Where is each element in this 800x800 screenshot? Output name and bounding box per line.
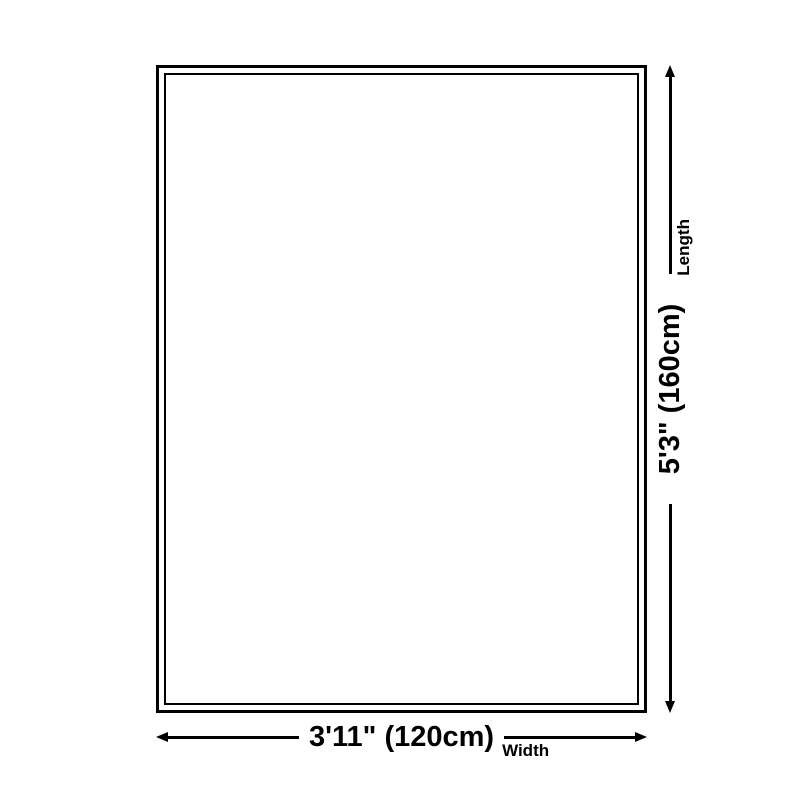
width-label: Width (502, 741, 549, 761)
width-arrow-left-segment (156, 731, 299, 743)
length-arrow-top-segment: Length (664, 65, 676, 274)
length-label: Length (674, 219, 694, 276)
width-arrow-right-segment: Width (504, 731, 647, 743)
length-value: 5'3" (160cm) (652, 304, 687, 475)
width-value: 3'11" (120cm) (309, 719, 494, 754)
dimension-line (168, 736, 299, 739)
dimension-line (669, 77, 672, 274)
rug-size-diagram: 5'3" (160cm) Length 3'11" (120cm) Width (0, 0, 800, 800)
length-arrow-bottom-segment (664, 504, 676, 713)
arrow-right-icon (635, 732, 647, 742)
dimension-line (669, 504, 672, 701)
rug-inner-outline (164, 73, 639, 705)
arrow-down-icon (665, 701, 675, 713)
arrow-left-icon (156, 732, 168, 742)
rug-outer-outline (156, 65, 647, 713)
dimension-line (504, 736, 635, 739)
arrow-up-icon (665, 65, 675, 77)
